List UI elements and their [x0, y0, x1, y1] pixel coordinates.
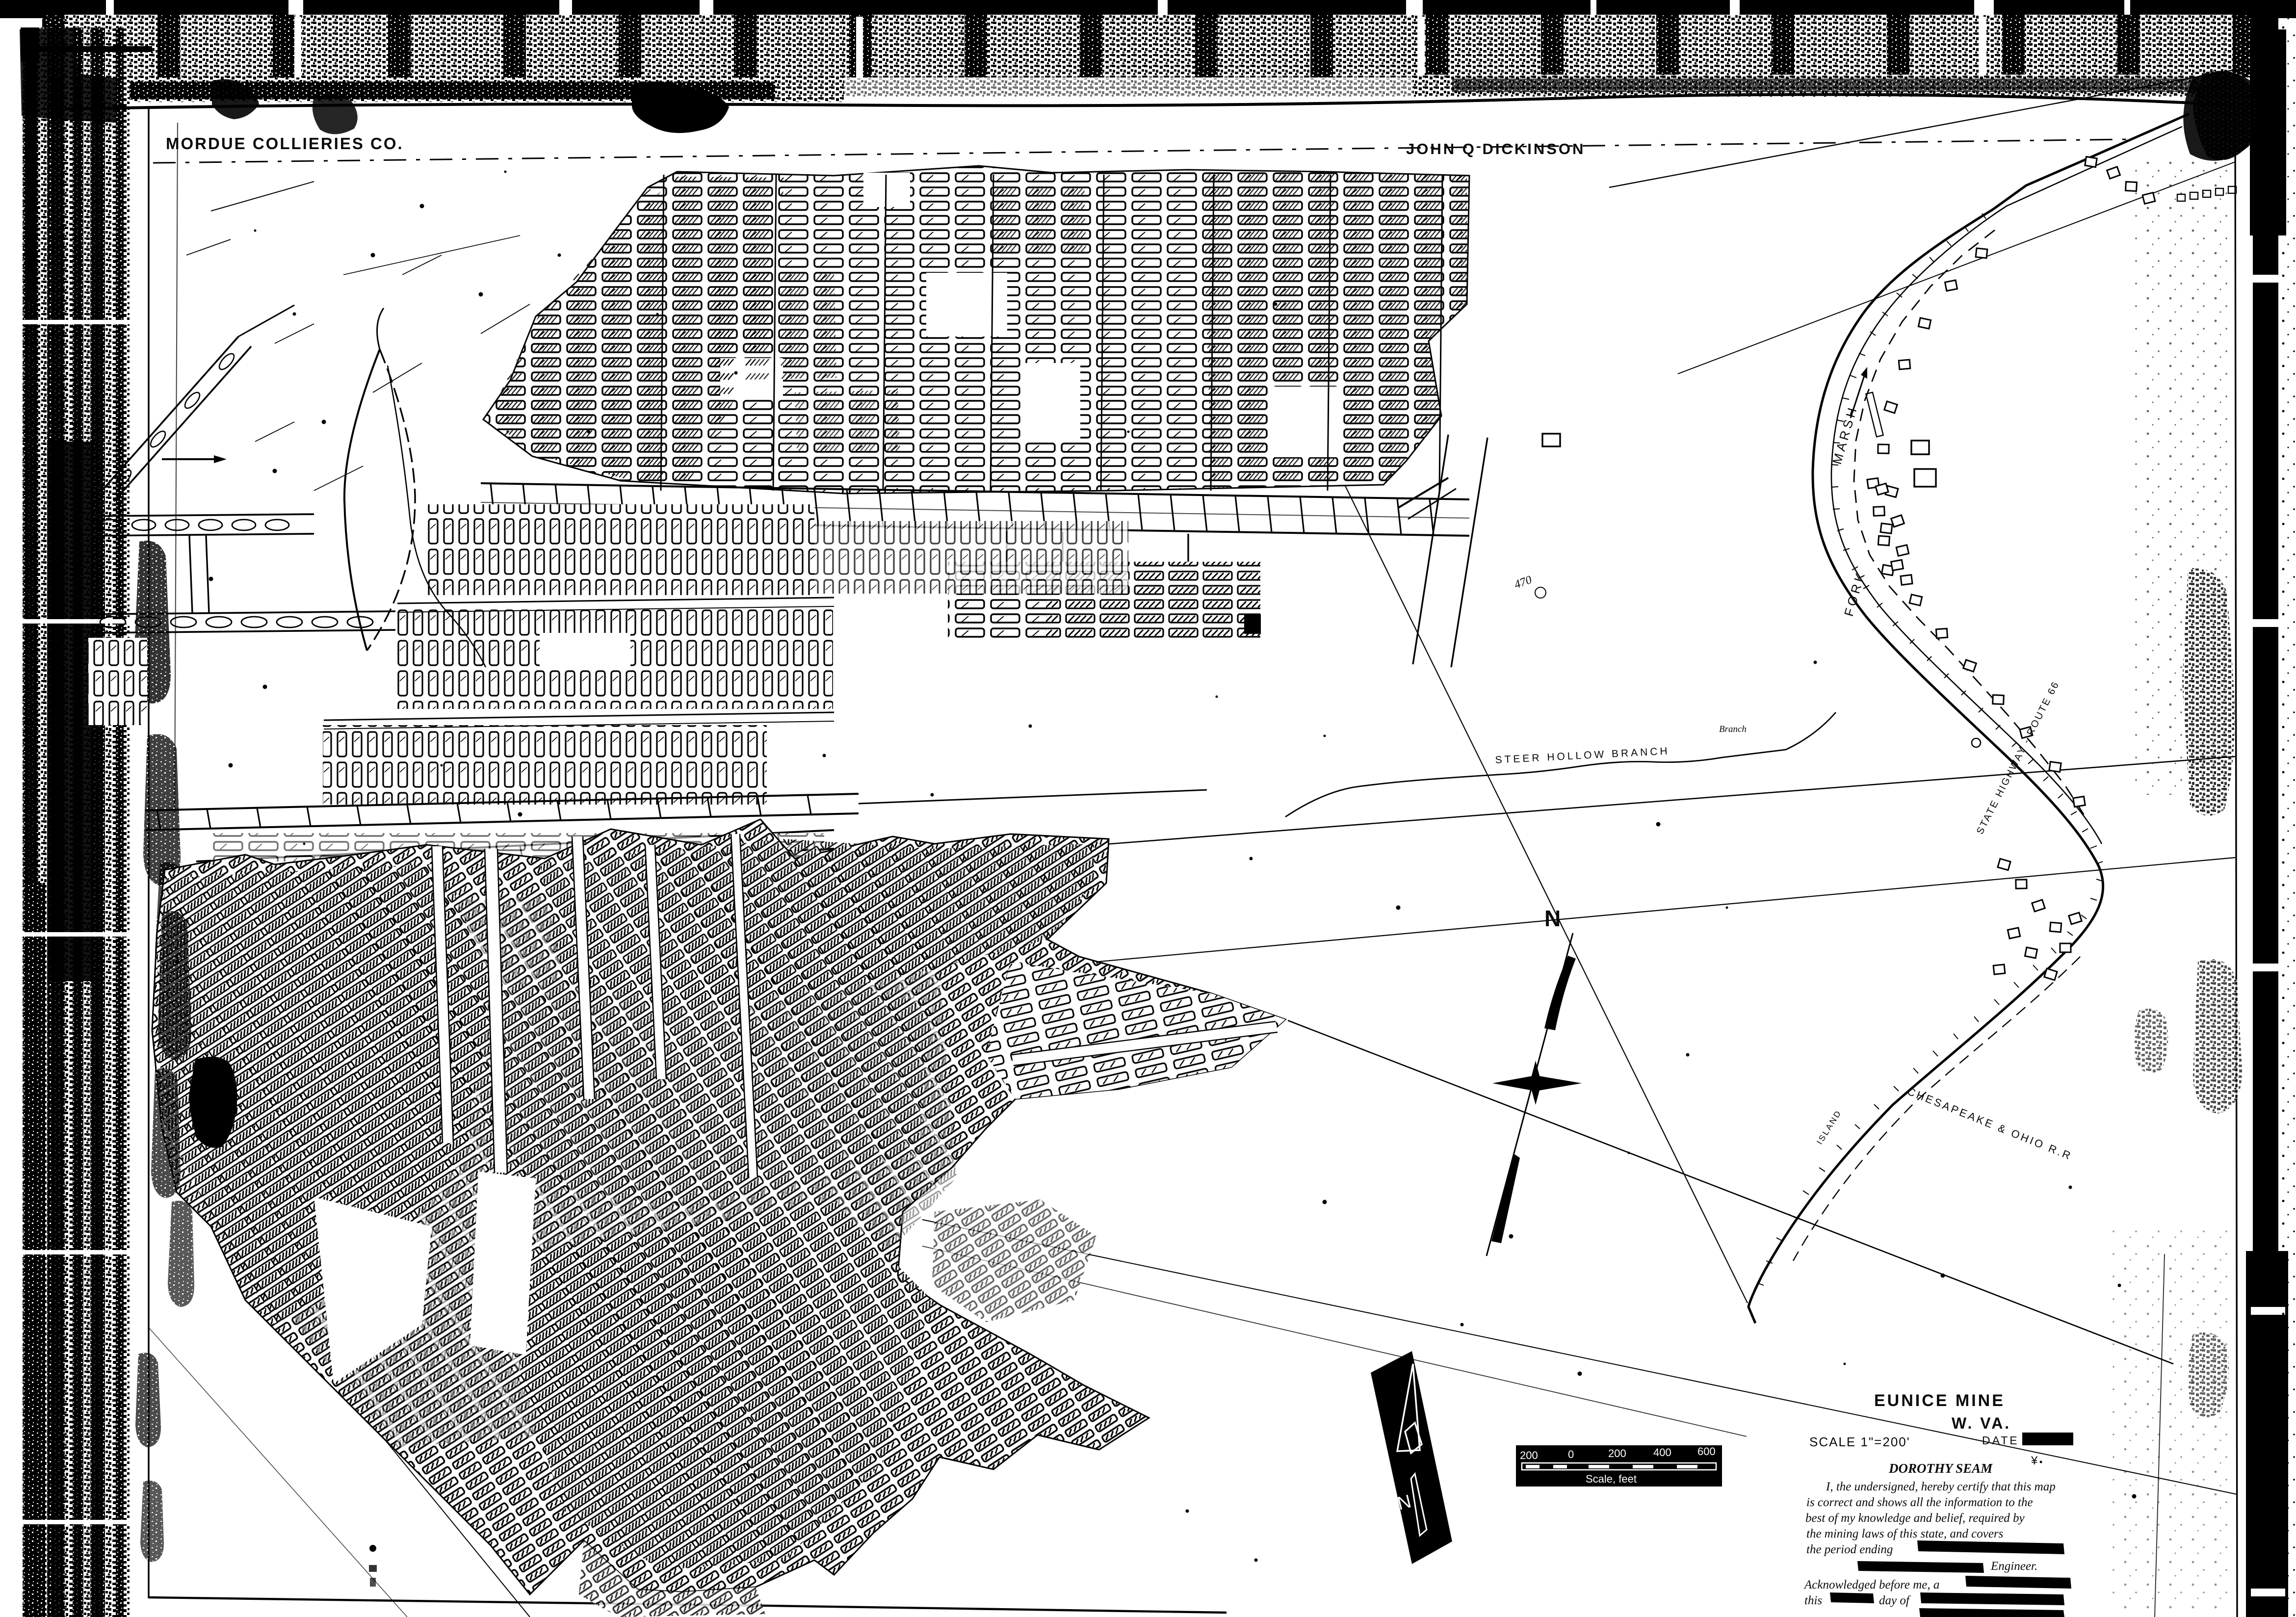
svg-text:Acknowledged before me, a: Acknowledged before me, a [1803, 1578, 1939, 1591]
svg-text:day of: day of [1879, 1594, 1911, 1607]
svg-text:SCALE 1"=200': SCALE 1"=200' [1809, 1434, 1910, 1449]
svg-text:Branch: Branch [1719, 724, 1747, 734]
svg-text:¥: ¥ [2031, 1454, 2038, 1467]
svg-text:0: 0 [1568, 1448, 1574, 1461]
svg-text:the period ending: the period ending [1806, 1543, 1893, 1556]
svg-text:N: N [1544, 906, 1561, 931]
svg-text:best of my knowledge and belie: best of my knowledge and belief, require… [1805, 1512, 2025, 1525]
svg-text:200: 200 [1608, 1447, 1626, 1460]
svg-text:W. VA.: W. VA. [1952, 1414, 2011, 1432]
svg-text:Engineer.: Engineer. [1990, 1560, 2037, 1573]
svg-text:DOROTHY SEAM: DOROTHY SEAM [1888, 1461, 1993, 1476]
svg-text:JOHN Q DICKINSON: JOHN Q DICKINSON [1406, 140, 1585, 157]
svg-text:I, the undersigned, hereby cer: I, the undersigned, hereby certify that … [1826, 1480, 2056, 1493]
svg-text:this: this [1804, 1594, 1822, 1607]
svg-text:400: 400 [1653, 1446, 1671, 1459]
svg-text:200: 200 [1520, 1449, 1538, 1461]
svg-text:MORDUE COLLIERIES CO.: MORDUE COLLIERIES CO. [166, 134, 404, 153]
svg-text:DATE: DATE [1982, 1434, 2019, 1447]
svg-text:is correct and shows all the i: is correct and shows all the information… [1806, 1496, 2033, 1509]
svg-text:600: 600 [1697, 1445, 1716, 1458]
svg-text:Scale, feet: Scale, feet [1586, 1473, 1637, 1485]
svg-text:EUNICE MINE: EUNICE MINE [1874, 1391, 2005, 1410]
svg-text:the mining laws of this state,: the mining laws of this state, and cover… [1806, 1527, 2003, 1540]
